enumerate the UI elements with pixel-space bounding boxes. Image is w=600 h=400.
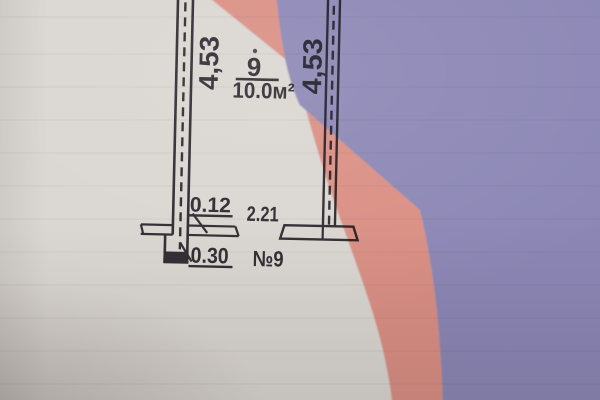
floor-plan-photo: 4,53 4,53 9 10.0м² 0.12 2.21 0.30 №9 <box>0 0 600 400</box>
highlight-overlays <box>0 0 600 400</box>
